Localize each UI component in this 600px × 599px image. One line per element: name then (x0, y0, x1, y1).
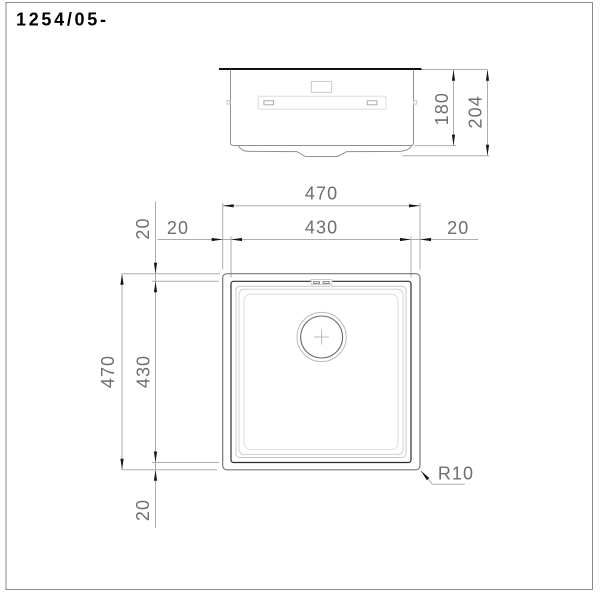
svg-text:20: 20 (167, 218, 189, 238)
svg-text:1254/05-: 1254/05- (16, 10, 109, 30)
svg-text:180: 180 (432, 92, 452, 125)
svg-text:20: 20 (133, 499, 153, 521)
svg-text:430: 430 (305, 218, 338, 238)
svg-text:470: 470 (305, 184, 338, 204)
svg-text:470: 470 (98, 355, 118, 388)
svg-text:20: 20 (447, 218, 469, 238)
svg-text:20: 20 (133, 217, 153, 239)
svg-text:R10: R10 (438, 464, 474, 484)
svg-text:430: 430 (134, 355, 154, 388)
svg-text:204: 204 (465, 95, 485, 128)
